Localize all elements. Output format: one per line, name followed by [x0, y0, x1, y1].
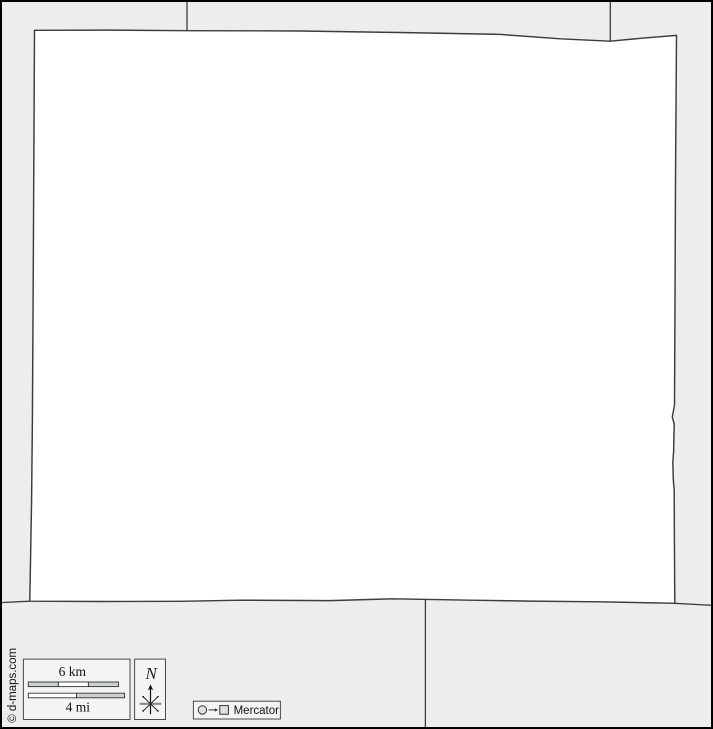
svg-text:© d-maps.com: © d-maps.com [7, 648, 19, 723]
svg-text:N: N [145, 664, 159, 683]
svg-text:4 mi: 4 mi [66, 700, 91, 715]
svg-text:Mercator: Mercator [234, 705, 280, 717]
svg-text:6 km: 6 km [59, 664, 87, 679]
